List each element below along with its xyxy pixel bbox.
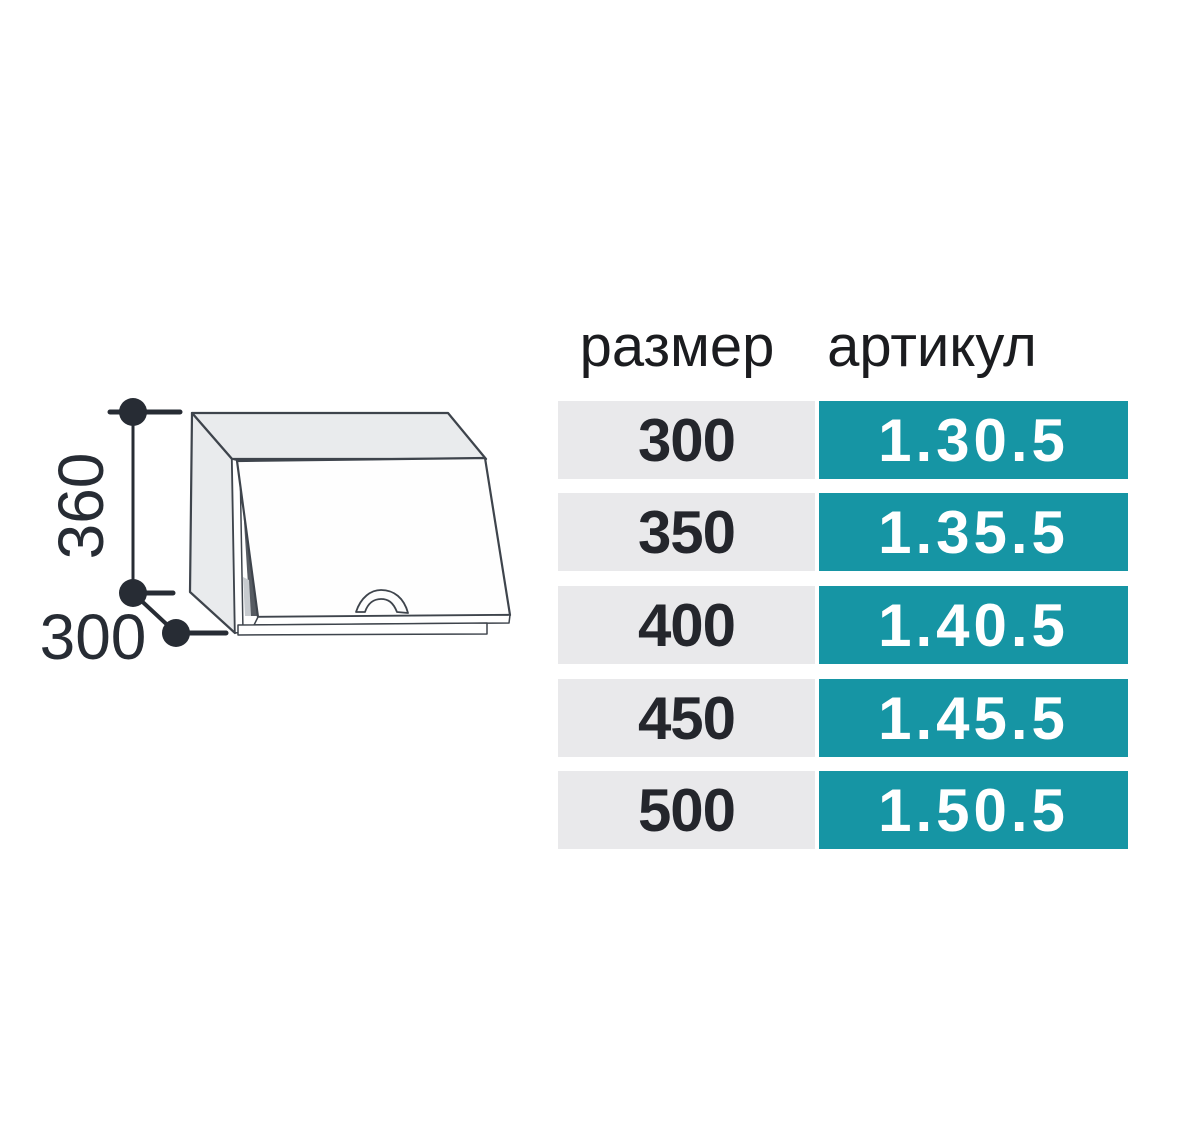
article-cell: 1.50.5 xyxy=(819,771,1128,849)
cabinet-top-panel xyxy=(192,413,486,459)
article-cell: 1.40.5 xyxy=(819,586,1128,664)
table-row: 350 1.35.5 xyxy=(558,493,1128,571)
table-row: 300 1.30.5 xyxy=(558,401,1128,479)
size-cell: 400 xyxy=(558,586,815,664)
cabinet-drawing xyxy=(190,413,510,635)
table-row: 450 1.45.5 xyxy=(558,679,1128,757)
table-row: 500 1.50.5 xyxy=(558,771,1128,849)
column-header-article: артикул xyxy=(782,310,1082,382)
size-cell: 500 xyxy=(558,771,815,849)
dimension-dot xyxy=(119,398,147,426)
column-header-size: размер xyxy=(548,310,806,382)
cabinet-diagram: 360 300 xyxy=(20,375,560,695)
table-row: 400 1.40.5 xyxy=(558,586,1128,664)
size-cell: 300 xyxy=(558,401,815,479)
cabinet-bottom-board xyxy=(238,623,487,635)
article-cell: 1.35.5 xyxy=(819,493,1128,571)
article-cell: 1.30.5 xyxy=(819,401,1128,479)
catalog-page: 360 300 размер артикул 300 1.30.5 350 1.… xyxy=(0,0,1200,1130)
depth-dimension-label: 300 xyxy=(40,601,147,673)
size-cell: 350 xyxy=(558,493,815,571)
article-cell: 1.45.5 xyxy=(819,679,1128,757)
size-cell: 450 xyxy=(558,679,815,757)
height-dimension-label: 360 xyxy=(45,453,117,560)
dimension-dot xyxy=(162,619,190,647)
